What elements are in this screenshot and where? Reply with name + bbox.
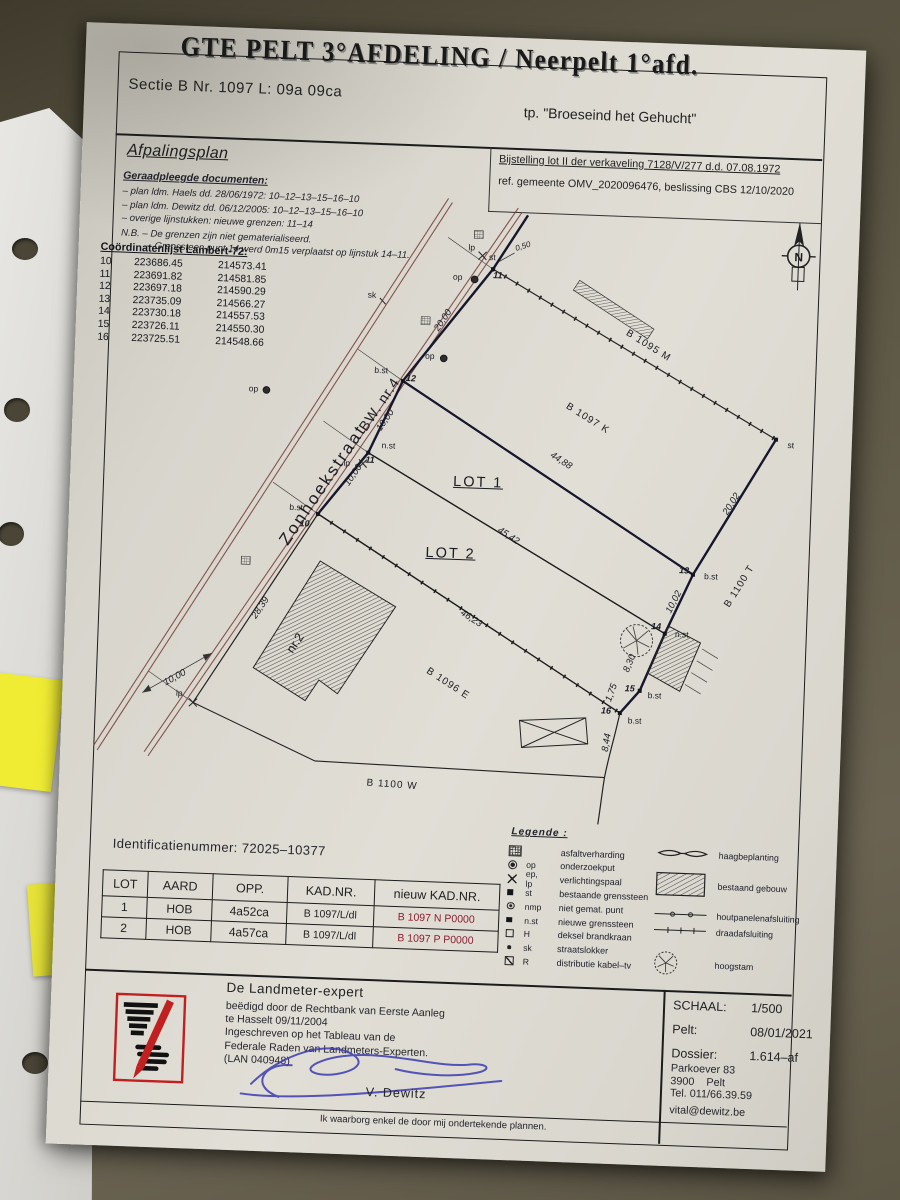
asphalt-markers	[241, 222, 483, 572]
haag-icon	[657, 848, 709, 862]
plan-label: op	[425, 351, 435, 361]
plan-label: lp	[468, 242, 475, 252]
east-boundary-bold	[620, 434, 776, 718]
plan-label: 16	[601, 705, 611, 715]
legend-item-hout: houtpanelenafsluiting	[654, 909, 706, 921]
survey-plan-paper: GTE PELT 3°AFDELING / Neerpelt 1°afd. Se…	[46, 22, 867, 1172]
legend-item-st: stbestaande grenssteen	[507, 885, 513, 898]
table-cell: 4a52ca	[211, 900, 287, 924]
binder-hole	[4, 398, 30, 422]
table-cell: 4a57ca	[211, 921, 287, 945]
legend-heading: Legende :	[511, 826, 568, 839]
footer-value: 1.614–af	[749, 1049, 798, 1065]
office-address: Parkoever 83 3900 Pelt Tel. 011/66.39.59	[670, 1062, 753, 1102]
table-header: KAD.NR.	[287, 877, 375, 906]
legend-item-hatch: asfaltverharding	[509, 844, 522, 857]
plan-label: 12	[406, 373, 416, 383]
H-icon	[506, 929, 514, 937]
plan-label: 10	[299, 518, 309, 528]
plan-label: 15	[625, 683, 635, 693]
nst-icon	[506, 917, 512, 923]
tree-symbol	[620, 624, 653, 657]
plan-label: b.st	[647, 690, 661, 700]
legend-item-ep, lp: ep, lpverlichtingspaal	[507, 872, 516, 885]
boom-icon	[652, 949, 679, 978]
st-icon	[507, 889, 513, 895]
lot-table: LOTAARDOPP.KAD.NR.nieuw KAD.NR.1HOB4a52c…	[100, 869, 500, 953]
footer-value: 08/01/2021	[750, 1025, 813, 1041]
draad-icon	[654, 925, 706, 937]
plan-label: n.st	[381, 440, 395, 450]
footer-value: 1/500	[751, 1001, 783, 1016]
hedge-strip	[572, 280, 656, 339]
plan-label: N	[794, 250, 803, 264]
gebouw-icon	[655, 872, 706, 900]
sk-icon	[507, 945, 511, 949]
photo-scene: GTE PELT 3°AFDELING / Neerpelt 1°afd. Se…	[0, 0, 900, 1200]
legend-item-n.st: n.stnieuwe grenssteen	[506, 913, 512, 926]
plan-label: n.st	[675, 629, 689, 639]
hout-icon	[654, 909, 706, 921]
boundary-b1095	[487, 269, 782, 439]
hatch-icon	[509, 845, 522, 856]
plan-label: b.st	[704, 571, 718, 581]
table-header: OPP.	[212, 874, 288, 903]
legend-item-sk: skstraatslokker	[505, 941, 511, 954]
plan-label: sk	[368, 290, 377, 300]
R-icon	[505, 956, 514, 965]
plan-label: b.st	[289, 502, 303, 512]
surveyor-logo	[112, 992, 187, 1085]
footer-label: SCHAAL:	[673, 998, 727, 1014]
footer-label: Pelt:	[672, 1022, 698, 1037]
plan-label: op	[249, 383, 259, 393]
south-boundary	[191, 702, 607, 777]
table-cell: B 1097/L/dl	[286, 924, 374, 948]
plan-label: 13	[679, 565, 689, 575]
legend-item-op: oponderzoekput	[508, 858, 517, 871]
table-cell: HOB	[147, 897, 213, 920]
plan-label: lp	[176, 688, 183, 698]
crossed-structure	[519, 715, 589, 750]
plan-label: 11	[493, 270, 503, 280]
legend-item-draad: draadafsluiting	[654, 925, 706, 937]
plan-label: LOT 2	[425, 545, 476, 563]
table-header: AARD	[147, 871, 213, 899]
binder-hole	[12, 238, 38, 260]
table-cell: 1	[102, 896, 148, 919]
op-icon	[508, 860, 517, 869]
legend: Legende : asfaltverhardingoponderzoekput…	[504, 826, 802, 995]
plan-label: 14	[651, 621, 661, 631]
table-cell: B 1097 P P0000	[373, 927, 499, 953]
table-cell: 2	[101, 917, 147, 940]
boundary-stones	[309, 261, 784, 721]
plan-label: LOT 1	[453, 474, 504, 492]
legend-item-boom: hoogstam	[652, 949, 679, 978]
plan-label: 11	[365, 455, 375, 465]
legend-item-R: Rdistributie kabel–tv	[504, 954, 513, 967]
lp-icon	[508, 874, 517, 883]
plan-label: st	[489, 252, 496, 262]
binder-hole	[22, 1052, 48, 1074]
footer-label: Dossier:	[671, 1046, 717, 1062]
signer-name: V. Dewitz	[366, 1085, 427, 1101]
plan-label: op	[453, 272, 463, 282]
legend-item-haag: haagbeplanting	[657, 848, 709, 862]
plan-label: lp	[343, 458, 350, 468]
plan-label: b.st	[374, 365, 388, 375]
nmp-icon	[507, 902, 515, 910]
east-boundary-curve	[598, 712, 620, 825]
table-cell: HOB	[146, 918, 212, 941]
plan-label: b.st	[628, 715, 642, 725]
plan-label: st	[787, 440, 794, 450]
legend-item-nmp: nmpniet gemat. punt	[506, 899, 514, 912]
id-value: 72025–10377	[241, 840, 325, 858]
table-header: LOT	[102, 870, 148, 898]
legend-item-gebouw: bestaand gebouw	[655, 872, 706, 900]
legend-item-H: Hdeksel brandkraan	[505, 927, 513, 940]
